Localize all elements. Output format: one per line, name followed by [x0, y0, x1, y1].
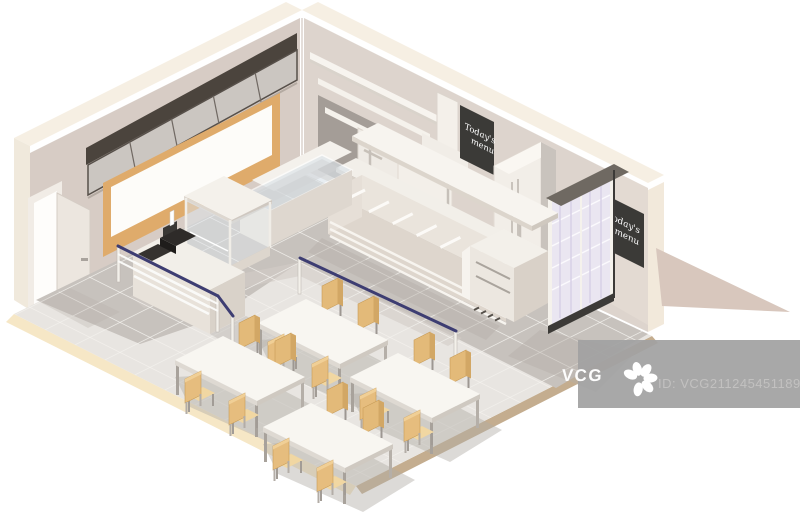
- watermark-id-text: ID: VCG211245451189: [658, 376, 800, 391]
- outside-shadow: [656, 248, 790, 312]
- door-opening: [34, 191, 57, 305]
- stand-slant-panel: [462, 246, 470, 300]
- cafeteria-illustration: Today's menu Today's menu: [0, 0, 800, 517]
- receipt-paper: [170, 210, 174, 226]
- watermark-bar: [578, 340, 800, 408]
- watermark: VCG ID: VCG211245451189: [561, 340, 800, 408]
- isometric-cafeteria-scene: Today's menu Today's menu: [0, 0, 800, 517]
- watermark-logo-text: VCG: [561, 366, 604, 385]
- door-handle: [81, 258, 88, 261]
- cooler-door-glass: [552, 188, 580, 326]
- left-wall-end-cap: [14, 138, 30, 310]
- cooler-door-glass: [582, 173, 610, 311]
